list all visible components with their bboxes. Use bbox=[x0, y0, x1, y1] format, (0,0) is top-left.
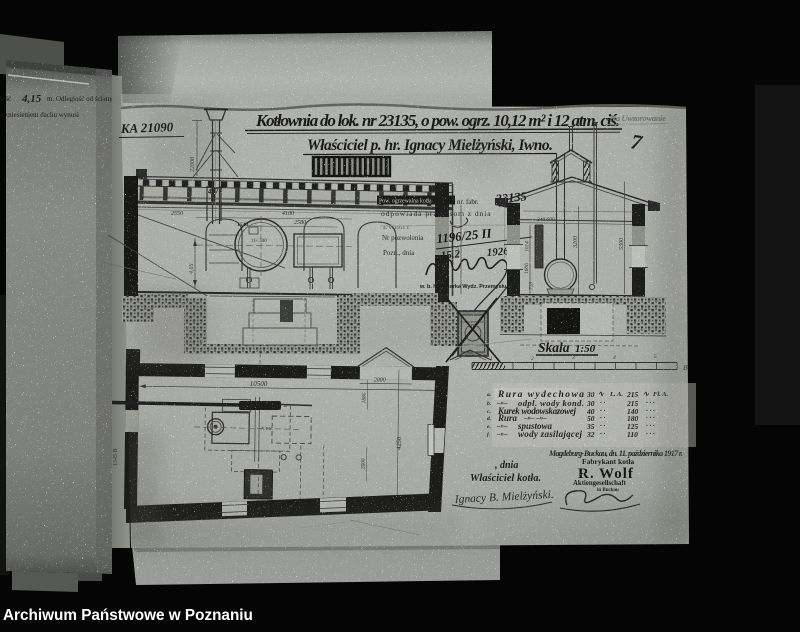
svg-text:1545 B: 1545 B bbox=[112, 449, 119, 467]
svg-text:Archiwum Państwowe w Poznaniu: Archiwum Państwowe w Poznaniu bbox=[3, 607, 253, 624]
